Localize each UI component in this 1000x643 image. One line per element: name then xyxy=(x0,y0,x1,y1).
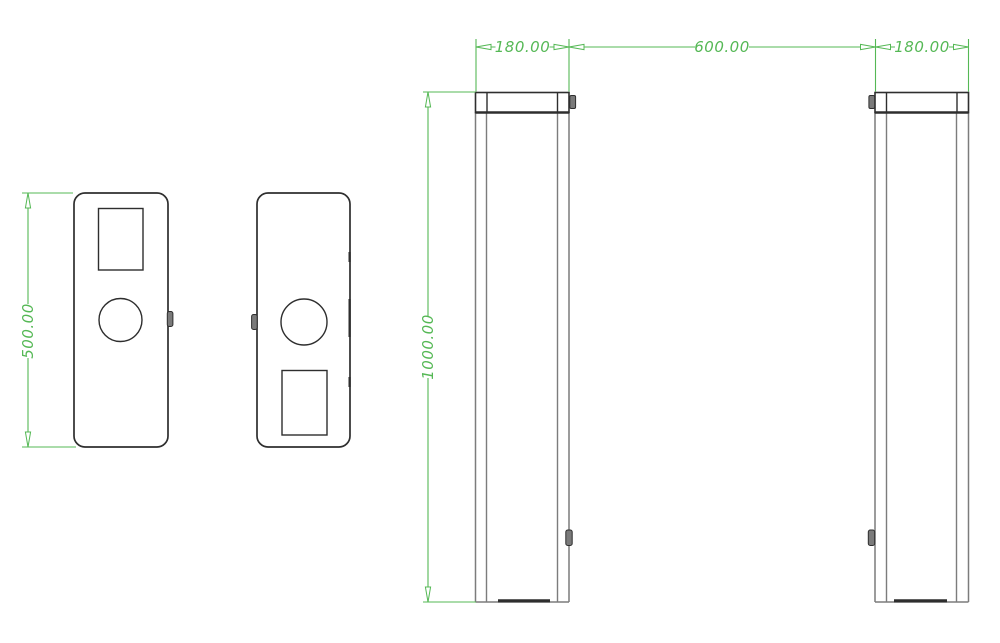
dimension-label-500: 500.00 xyxy=(19,303,37,359)
hinge-tab-bottom xyxy=(566,530,572,546)
top-view-left-unit xyxy=(74,193,173,447)
hinge-tab-top xyxy=(570,96,576,109)
dimension-arrow xyxy=(861,44,876,49)
cad-drawing-canvas: 500.00 180 xyxy=(0,0,1000,643)
front-view-right-pillar xyxy=(868,93,968,603)
dimension-500: 500.00 xyxy=(19,193,76,447)
dimension-arrow xyxy=(554,44,569,49)
dimension-label-180-right: 180.00 xyxy=(894,38,950,56)
dimension-label-180-left: 180.00 xyxy=(495,38,551,56)
dimension-arrow xyxy=(954,44,969,49)
pillar-cap xyxy=(875,93,969,113)
side-tab xyxy=(252,315,258,330)
cad-drawing-page: 500.00 180 xyxy=(0,0,1000,643)
dimension-arrow xyxy=(476,44,491,49)
unit-outline xyxy=(74,193,168,447)
hinge-tab-bottom xyxy=(868,530,874,546)
top-view-right-unit xyxy=(252,193,350,447)
dimension-arrow xyxy=(25,193,30,208)
dimension-1000: 1000.00 xyxy=(419,92,476,602)
dimension-arrow xyxy=(25,432,30,447)
hinge-tab-top xyxy=(869,96,875,109)
dimension-label-600: 600.00 xyxy=(694,38,750,56)
dimension-row-top: 180.00 600.00 180.00 xyxy=(476,38,969,92)
dimension-arrow xyxy=(569,44,584,49)
side-tab xyxy=(167,312,173,327)
dimension-arrow xyxy=(876,44,891,49)
front-view-left-pillar xyxy=(476,93,576,603)
dimension-label-1000: 1000.00 xyxy=(419,314,437,380)
pillar-cap xyxy=(476,93,570,113)
dimension-arrow xyxy=(425,92,430,107)
unit-outline xyxy=(257,193,350,447)
dimension-arrow xyxy=(425,587,430,602)
